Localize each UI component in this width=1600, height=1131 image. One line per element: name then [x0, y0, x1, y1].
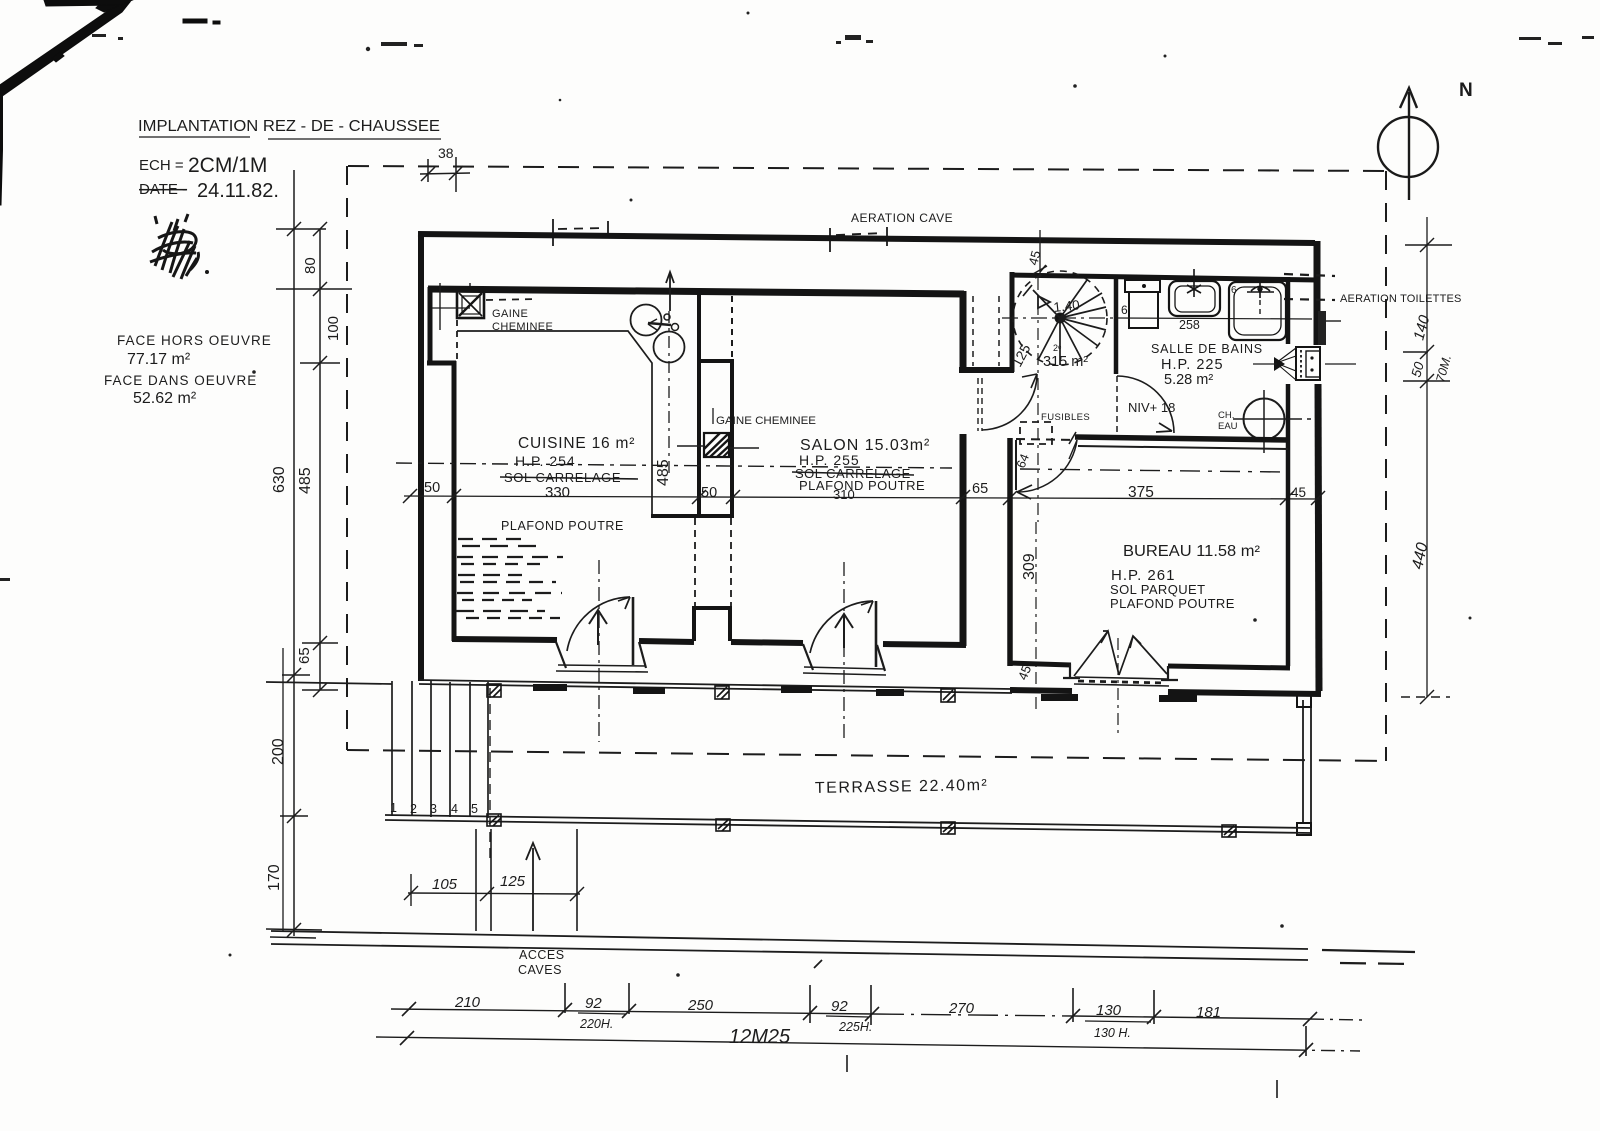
- svg-text:GAINE: GAINE: [492, 308, 528, 320]
- svg-text:100: 100: [325, 316, 342, 341]
- svg-text:105: 105: [432, 876, 458, 893]
- svg-text:130: 130: [1096, 1002, 1122, 1019]
- svg-text:FACE DANS OEUVRE: FACE DANS OEUVRE: [104, 373, 257, 388]
- svg-text:NIV+ 18: NIV+ 18: [1128, 400, 1175, 415]
- svg-text:SOL PARQUET: SOL PARQUET: [1110, 582, 1205, 597]
- svg-text:1.40: 1.40: [1053, 297, 1081, 315]
- svg-text:485: 485: [297, 467, 314, 494]
- svg-text:GAINE CHEMINEE: GAINE CHEMINEE: [716, 415, 816, 427]
- svg-text:3: 3: [430, 802, 437, 816]
- svg-text:AERATION CAVE: AERATION CAVE: [851, 211, 953, 225]
- svg-text:BUREAU 11.58 m²: BUREAU 11.58 m²: [1123, 543, 1260, 560]
- svg-text:PLAFOND POUTRE: PLAFOND POUTRE: [501, 519, 624, 533]
- svg-text:24.11.82.: 24.11.82.: [197, 180, 279, 202]
- svg-text:50: 50: [1408, 360, 1427, 379]
- svg-text:170: 170: [266, 864, 283, 891]
- svg-text:330: 330: [545, 484, 570, 501]
- svg-text:92: 92: [585, 995, 602, 1012]
- svg-text:PLAFOND POUTRE: PLAFOND POUTRE: [1110, 596, 1235, 611]
- svg-text:ECH =: ECH =: [139, 157, 184, 174]
- svg-text:CUISINE 16 m²: CUISINE 16 m²: [518, 435, 635, 452]
- svg-text:200: 200: [270, 738, 287, 765]
- svg-text:52.62 m²: 52.62 m²: [133, 390, 197, 407]
- svg-text:375: 375: [1128, 484, 1154, 501]
- svg-text:310: 310: [833, 487, 855, 502]
- svg-text:92: 92: [831, 998, 848, 1015]
- svg-text:630: 630: [271, 466, 288, 493]
- svg-text:80: 80: [302, 257, 319, 274]
- svg-text:DATE -: DATE -: [139, 181, 187, 198]
- svg-text:50: 50: [424, 480, 440, 496]
- svg-text:130 H.: 130 H.: [1094, 1026, 1131, 1040]
- svg-text:TERRASSE 22.40m²: TERRASSE 22.40m²: [815, 777, 989, 797]
- svg-text:485: 485: [655, 459, 672, 486]
- svg-text:77.17 m²: 77.17 m²: [127, 351, 191, 368]
- svg-text:EAU: EAU: [1218, 421, 1238, 432]
- svg-text:210: 210: [454, 994, 481, 1011]
- svg-text:70M.: 70M.: [1433, 353, 1454, 383]
- svg-text:220H.: 220H.: [579, 1017, 613, 1031]
- svg-text:5.28 m²: 5.28 m²: [1164, 372, 1213, 388]
- svg-text:65: 65: [972, 481, 988, 497]
- svg-text:6: 6: [1231, 285, 1237, 296]
- svg-text:12M25: 12M25: [729, 1026, 791, 1048]
- svg-text:5: 5: [471, 802, 478, 816]
- svg-text:181: 181: [1196, 1004, 1221, 1021]
- svg-text:CH.: CH.: [1218, 410, 1234, 421]
- svg-text:H.P. 254: H.P. 254: [515, 453, 576, 469]
- svg-text:PLAFOND POUTRE: PLAFOND POUTRE: [799, 478, 925, 493]
- svg-text:1: 1: [390, 801, 397, 815]
- svg-text:AERATION TOILETTES: AERATION TOILETTES: [1340, 293, 1462, 305]
- svg-text:140: 140: [1410, 313, 1433, 342]
- svg-text:315 m²: 315 m²: [1043, 354, 1088, 370]
- svg-text:65: 65: [296, 647, 313, 664]
- svg-text:45: 45: [1025, 249, 1043, 267]
- svg-text:ACCES: ACCES: [519, 948, 565, 962]
- svg-text:258: 258: [1179, 318, 1200, 332]
- svg-text:440: 440: [1409, 541, 1431, 571]
- svg-text:225H.: 225H.: [838, 1020, 872, 1034]
- svg-text:FUSIBLES: FUSIBLES: [1041, 412, 1090, 423]
- svg-text:CAVES: CAVES: [518, 963, 562, 977]
- svg-text:250: 250: [687, 997, 714, 1014]
- svg-text:125: 125: [500, 873, 526, 890]
- svg-text:45: 45: [1291, 485, 1306, 500]
- svg-text:IMPLANTATION REZ - DE - CHAUS: IMPLANTATION REZ - DE - CHAUSSEE: [138, 118, 440, 135]
- svg-text:N: N: [1459, 80, 1473, 101]
- svg-text:FACE HORS OEUVRE: FACE HORS OEUVRE: [117, 333, 272, 348]
- svg-text:270: 270: [948, 1000, 975, 1017]
- svg-text:38: 38: [438, 145, 454, 161]
- svg-text:4: 4: [451, 802, 458, 816]
- svg-text:2: 2: [410, 802, 417, 816]
- svg-text:H.P. 225: H.P. 225: [1161, 357, 1224, 373]
- svg-text:SALLE DE BAINS: SALLE DE BAINS: [1151, 342, 1263, 356]
- svg-text:2ᵉ: 2ᵉ: [1053, 343, 1062, 353]
- svg-text:2CM/1M: 2CM/1M: [188, 154, 267, 177]
- svg-text:6: 6: [1121, 303, 1128, 317]
